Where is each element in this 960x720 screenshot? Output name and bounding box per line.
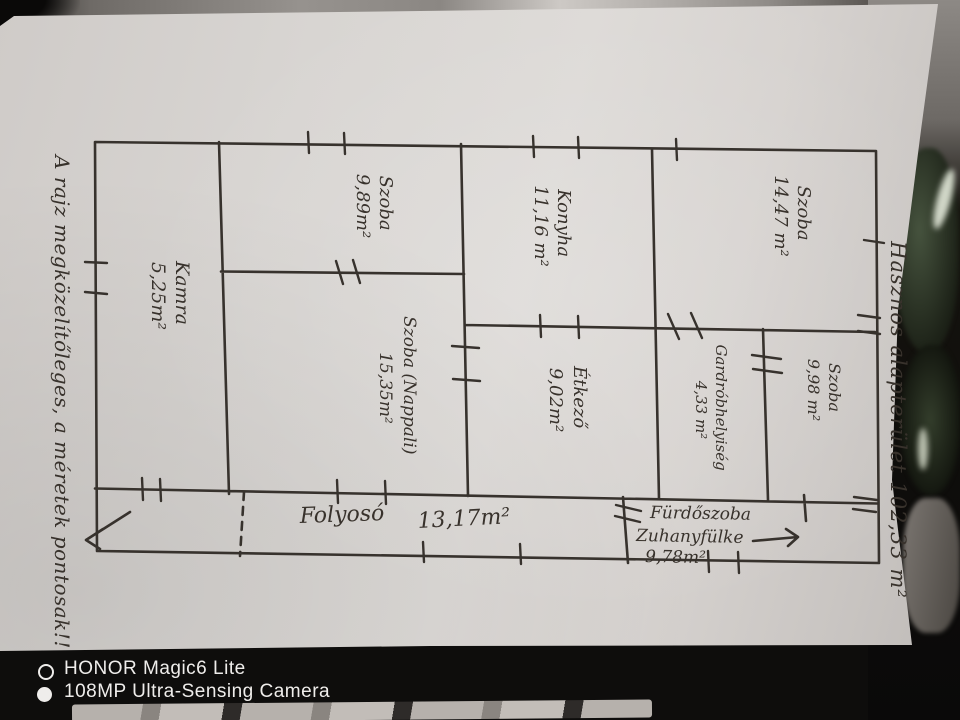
room-label-konyha: Konyha 11,16 m² — [530, 185, 574, 267]
room-label-nappali: Szoba (Nappali) 15,35m² — [375, 316, 419, 460]
room-name: Gardróbhelyiség — [712, 344, 730, 470]
corridor-dashed-door — [240, 492, 244, 556]
room-name: Szoba — [793, 186, 814, 241]
room-name: Kamra — [171, 260, 193, 325]
room-name: Konyha — [553, 188, 574, 257]
note-left-margin: A rajz megközelítőleges, a méretek ponto… — [50, 153, 74, 649]
room-label-folyoso: Folyosó — [298, 501, 384, 529]
room-label-szoba-1: Szoba 9,89m² — [352, 174, 396, 238]
plan-labels-group: Szoba 9,89m² Konyha 11,16 m² Szoba 14,47… — [50, 153, 910, 649]
room-name: Szoba — [375, 176, 396, 231]
room-area: 15,35m² — [375, 352, 395, 424]
floorplan-drawing: Szoba 9,89m² Konyha 11,16 m² Szoba 14,47… — [0, 0, 960, 720]
room-label-gardrob: Gardróbhelyiség 4,33 m² — [692, 344, 730, 475]
watermark-dot-icon — [37, 687, 52, 702]
room-area: 9,02m² — [545, 368, 566, 432]
watermark-device: HONOR Magic6 Lite — [64, 658, 246, 680]
room-label-szoba-3: Szoba 9,98 m² — [804, 359, 844, 421]
note-total-area: Hasznos alapterület 102,33 m² — [886, 240, 910, 599]
room-area: 9,98 m² — [804, 359, 823, 421]
room-area: 4,33 m² — [692, 380, 710, 439]
room-label-kamra: Kamra 5,25m² — [147, 260, 193, 331]
room-area: 11,16 m² — [530, 185, 551, 267]
outer-walls — [95, 142, 879, 563]
entrance-arrow — [86, 512, 130, 549]
room-name: Szoba — [825, 363, 844, 412]
watermark-ring-icon — [38, 664, 54, 680]
inner-walls — [95, 142, 877, 563]
room-area-furdoszoba: 9,78m² — [645, 547, 706, 568]
room-area: 5,25m² — [147, 262, 169, 330]
room-area-folyoso: 13,17m² — [417, 504, 511, 534]
room-name: Szoba (Nappali) — [399, 316, 419, 454]
watermark-camera: 108MP Ultra-Sensing Camera — [64, 681, 330, 703]
bathroom-door-arrow — [753, 529, 798, 546]
room-area: 9,89m² — [352, 174, 373, 238]
room-detail-zuhanyfulke: Zuhanyfülke — [635, 526, 744, 548]
room-area: 14,47 m² — [770, 175, 791, 257]
photo-frame: Szoba 9,89m² Konyha 11,16 m² Szoba 14,47… — [0, 0, 960, 720]
room-label-szoba-2: Szoba 14,47 m² — [770, 175, 814, 257]
room-label-etkezo: Étkező 9,02m² — [545, 365, 592, 434]
room-name: Étkező — [569, 365, 592, 429]
room-label-furdoszoba: Fürdőszoba — [649, 503, 751, 525]
